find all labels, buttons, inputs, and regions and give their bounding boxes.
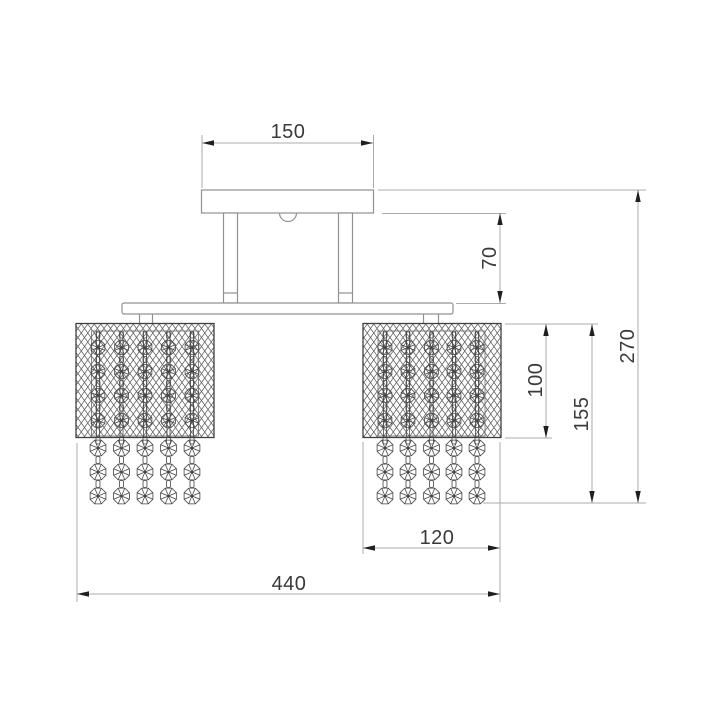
dimension-label-stem-height: 70 xyxy=(479,246,501,269)
dimension-stem-height: 70 xyxy=(382,213,506,304)
arrow-down-icon xyxy=(589,491,594,503)
stem-right xyxy=(339,213,353,303)
ceiling-canopy-plate xyxy=(202,190,374,213)
dimension-shade-height: 100 xyxy=(525,324,549,438)
arrow-right-icon xyxy=(361,140,373,145)
arrow-up-icon xyxy=(635,190,640,202)
arrow-down-icon xyxy=(635,491,640,503)
fixture xyxy=(76,190,501,504)
dimension-label-shade-width: 120 xyxy=(420,527,455,549)
arrow-right-icon xyxy=(488,591,500,596)
arrow-left-icon xyxy=(77,591,89,596)
dimension-total-height: 270 xyxy=(617,190,641,503)
dimension-canopy-width: 150 xyxy=(202,121,374,188)
dimension-total-width: 440 xyxy=(77,443,500,602)
arrow-down-icon xyxy=(497,291,502,303)
dimension-label-total-height: 270 xyxy=(617,329,639,364)
crossbar xyxy=(122,303,453,314)
arrow-up-icon xyxy=(589,324,594,336)
stem-left xyxy=(224,213,238,303)
arrow-up-icon xyxy=(497,213,502,225)
arrow-left-icon xyxy=(363,545,375,550)
dimension-label-shade-with-crystals-height: 155 xyxy=(571,397,593,432)
dimension-shade-with-crystals-height: 155 xyxy=(571,324,595,503)
arrow-right-icon xyxy=(488,545,500,550)
chandelier-dimension-drawing: 150 70 100 155 xyxy=(0,0,720,720)
dimension-label-total-width: 440 xyxy=(272,573,307,595)
arrow-left-icon xyxy=(202,140,214,145)
shade-hangers xyxy=(140,314,439,324)
dimension-label-shade-height: 100 xyxy=(525,363,547,398)
mounting-bump xyxy=(280,213,297,222)
drawing-page: 150 70 100 155 xyxy=(0,0,720,720)
dimension-label-canopy-width: 150 xyxy=(271,121,306,143)
arrow-down-icon xyxy=(543,426,548,438)
arrow-up-icon xyxy=(543,324,548,336)
